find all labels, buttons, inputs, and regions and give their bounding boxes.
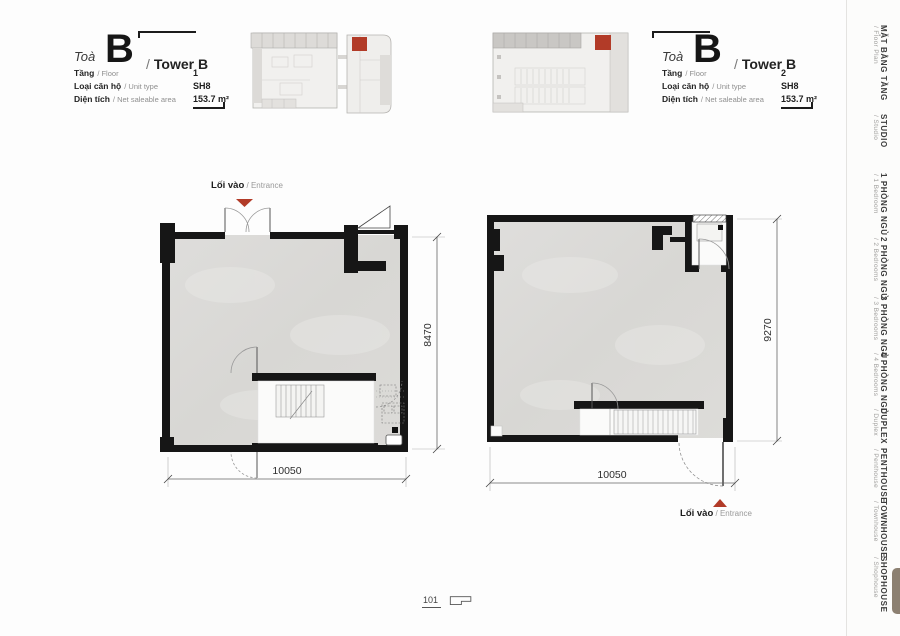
corner-bracket-decoration [193,102,225,109]
sidebar-item-floor-plan[interactable]: MẶT BẰNG TẦNG/ Floor Plan [872,25,888,101]
tower-letter: B [105,29,134,69]
entrance-label-floor2: Lối vào / Entrance [656,508,776,519]
sidebar-item-2-bedrooms[interactable]: 2 PHÒNG NGỦ/ 2 Bedrooms [872,237,888,300]
sidebar-item-3-bedrooms[interactable]: 3 PHÒNG NGỦ/ 3 Bedrooms [872,296,888,359]
sidebar-item-1-bedroom[interactable]: 1 PHÒNG NGỦ/ 1 Bedroom [872,173,888,236]
bathroom [692,215,729,269]
tower-prefix-label: Toà [74,49,95,64]
key-plan-thumbnail-floor2 [487,25,672,120]
highlighted-unit-marker [352,37,367,51]
sidebar-item-shophouse[interactable]: SHOPHOUSE/ Shophouse [872,556,888,613]
active-tab-indicator [892,568,900,614]
floor-plan-drawing-floor2: 10050 9270 [460,195,810,530]
category-sidebar: MẶT BẰNG TẦNG/ Floor Plan STUDIO/ Studio… [847,0,900,636]
floor-value: 2 [781,68,786,78]
toilet-fixture [386,435,402,445]
corner-fixture [491,426,502,436]
sidebar-item-townhouse[interactable]: TOWNHOUSE/ Townhouse [872,500,888,558]
sidebar-item-4-bedrooms[interactable]: 4 PHÒNG NGỦ/ 4 Bedrooms [872,352,888,415]
staircase [276,385,324,419]
key-plan-thumbnail-floor1 [250,25,440,120]
info-row-unit-type: Loại căn hộ/ Unit type SH8 [74,81,274,91]
corner-bracket-decoration [138,31,196,38]
entrance-double-door [225,208,270,232]
sidebar-item-studio[interactable]: STUDIO/ Studio [872,114,888,148]
sidebar-item-penthouse[interactable]: PENTHOUSE/ Penthouse [872,448,888,503]
entrance-arrow-icon [713,499,727,507]
page-number: 101 [422,590,474,608]
dimension-height-label: 8470 [422,323,434,347]
corner-bracket-decoration [781,102,813,109]
dimension-width-label: 10050 [272,465,301,477]
unit-type-value: SH8 [781,81,799,91]
entrance-arrow-icon [236,199,253,207]
stair-step-logo-icon [444,590,474,608]
sidebar-item-duplex[interactable]: DUPLEX/ Duplex [872,408,888,444]
floor-plan-page: Toà B /Tower B Tầng/ Floor 1 Loại căn hộ… [0,0,900,636]
info-row-unit-type: Loại căn hộ/ Unit type SH8 [662,81,862,91]
info-row-area: Diện tích/ Net saleable area 153.7 m² [662,94,862,104]
floor-plan-drawing-floor1: 10050 8470 [140,175,470,520]
unit-header-floor2: Toà B /Tower B Tầng/ Floor 2 Loại căn hộ… [652,28,867,118]
dimension-width-label: 10050 [597,469,626,481]
unit-type-value: SH8 [193,81,211,91]
unit-header-floor1: Toà B /Tower B Tầng/ Floor 1 Loại căn hộ… [64,28,279,118]
fixture-marker [392,427,398,433]
highlighted-unit-marker [595,35,611,50]
door-leaf [358,206,390,228]
floor-value: 1 [193,68,198,78]
info-row-area: Diện tích/ Net saleable area 153.7 m² [74,94,274,104]
info-row-floor: Tầng/ Floor 2 [662,68,862,78]
dimension-height-label: 9270 [762,318,774,342]
tower-letter: B [693,29,722,69]
info-row-floor: Tầng/ Floor 1 [74,68,274,78]
exterior-entrance-door [679,442,723,486]
